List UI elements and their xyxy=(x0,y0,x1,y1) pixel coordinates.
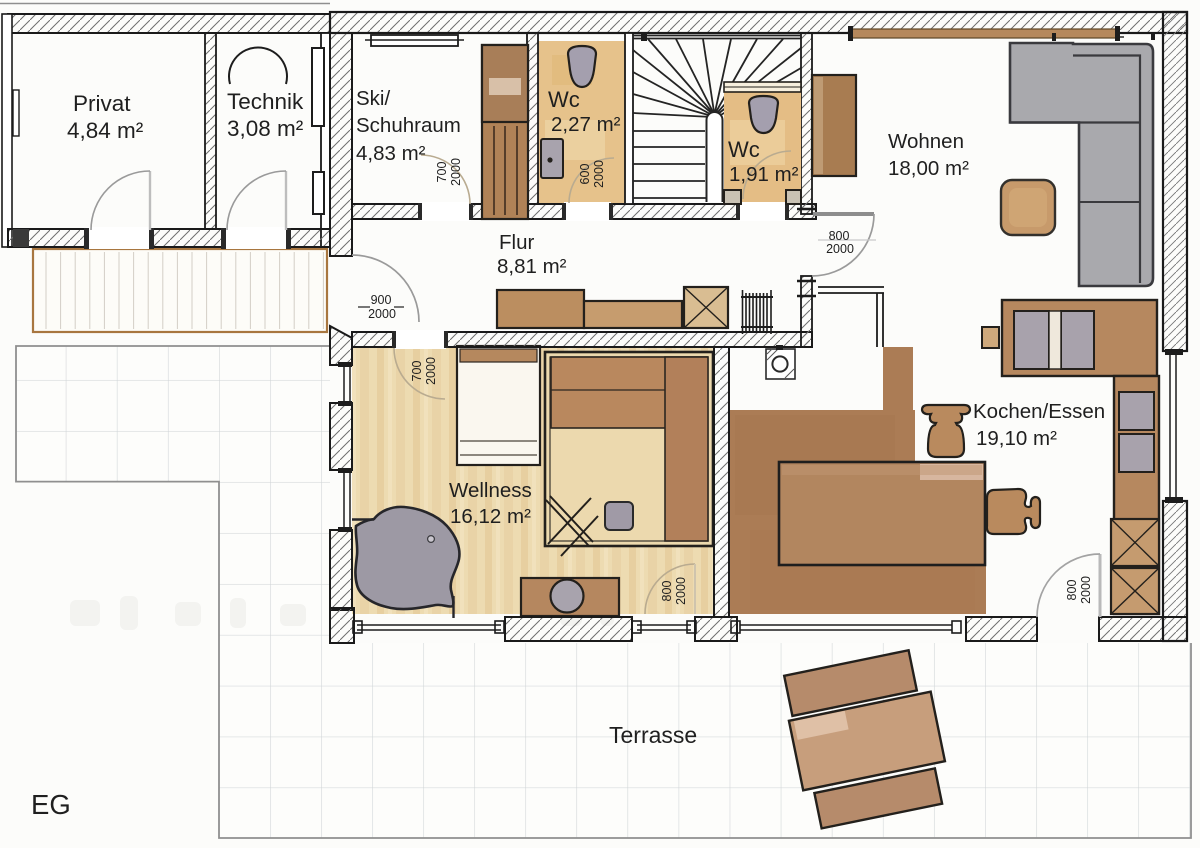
svg-text:1,91 m²: 1,91 m² xyxy=(729,163,799,186)
svg-text:2000: 2000 xyxy=(826,242,854,256)
svg-text:2000: 2000 xyxy=(424,357,438,385)
svg-text:Wohnen: Wohnen xyxy=(888,130,964,153)
svg-text:Flur: Flur xyxy=(499,231,534,254)
svg-text:2000: 2000 xyxy=(368,307,396,321)
svg-text:800: 800 xyxy=(1065,580,1079,601)
svg-text:Privat: Privat xyxy=(73,91,131,116)
svg-text:600: 600 xyxy=(578,164,592,185)
svg-text:18,00 m²: 18,00 m² xyxy=(888,157,969,180)
svg-text:Wc: Wc xyxy=(728,137,760,162)
svg-text:Wellness: Wellness xyxy=(449,479,532,502)
svg-text:Technik: Technik xyxy=(227,89,304,114)
svg-text:Schuhraum: Schuhraum xyxy=(356,114,461,137)
svg-text:800: 800 xyxy=(829,229,850,243)
svg-text:8,81 m²: 8,81 m² xyxy=(497,255,567,278)
svg-text:Terrasse: Terrasse xyxy=(609,722,697,748)
svg-text:2000: 2000 xyxy=(674,577,688,605)
svg-text:2000: 2000 xyxy=(1079,576,1093,604)
svg-text:2,27 m²: 2,27 m² xyxy=(551,113,621,136)
svg-text:3,08 m²: 3,08 m² xyxy=(227,116,304,141)
svg-text:4,83 m²: 4,83 m² xyxy=(356,142,426,165)
svg-text:EG: EG xyxy=(31,789,71,820)
svg-text:Ski/: Ski/ xyxy=(356,87,390,110)
svg-text:4,84 m²: 4,84 m² xyxy=(67,118,144,143)
svg-text:2000: 2000 xyxy=(449,158,463,186)
svg-text:16,12 m²: 16,12 m² xyxy=(450,505,531,528)
svg-text:800: 800 xyxy=(660,581,674,602)
svg-text:Kochen/Essen: Kochen/Essen xyxy=(973,400,1105,423)
svg-text:700: 700 xyxy=(410,361,424,382)
svg-text:2000: 2000 xyxy=(592,160,606,188)
svg-text:19,10 m²: 19,10 m² xyxy=(976,427,1057,450)
svg-text:Wc: Wc xyxy=(548,87,580,112)
svg-text:700: 700 xyxy=(435,162,449,183)
svg-text:900: 900 xyxy=(371,293,392,307)
